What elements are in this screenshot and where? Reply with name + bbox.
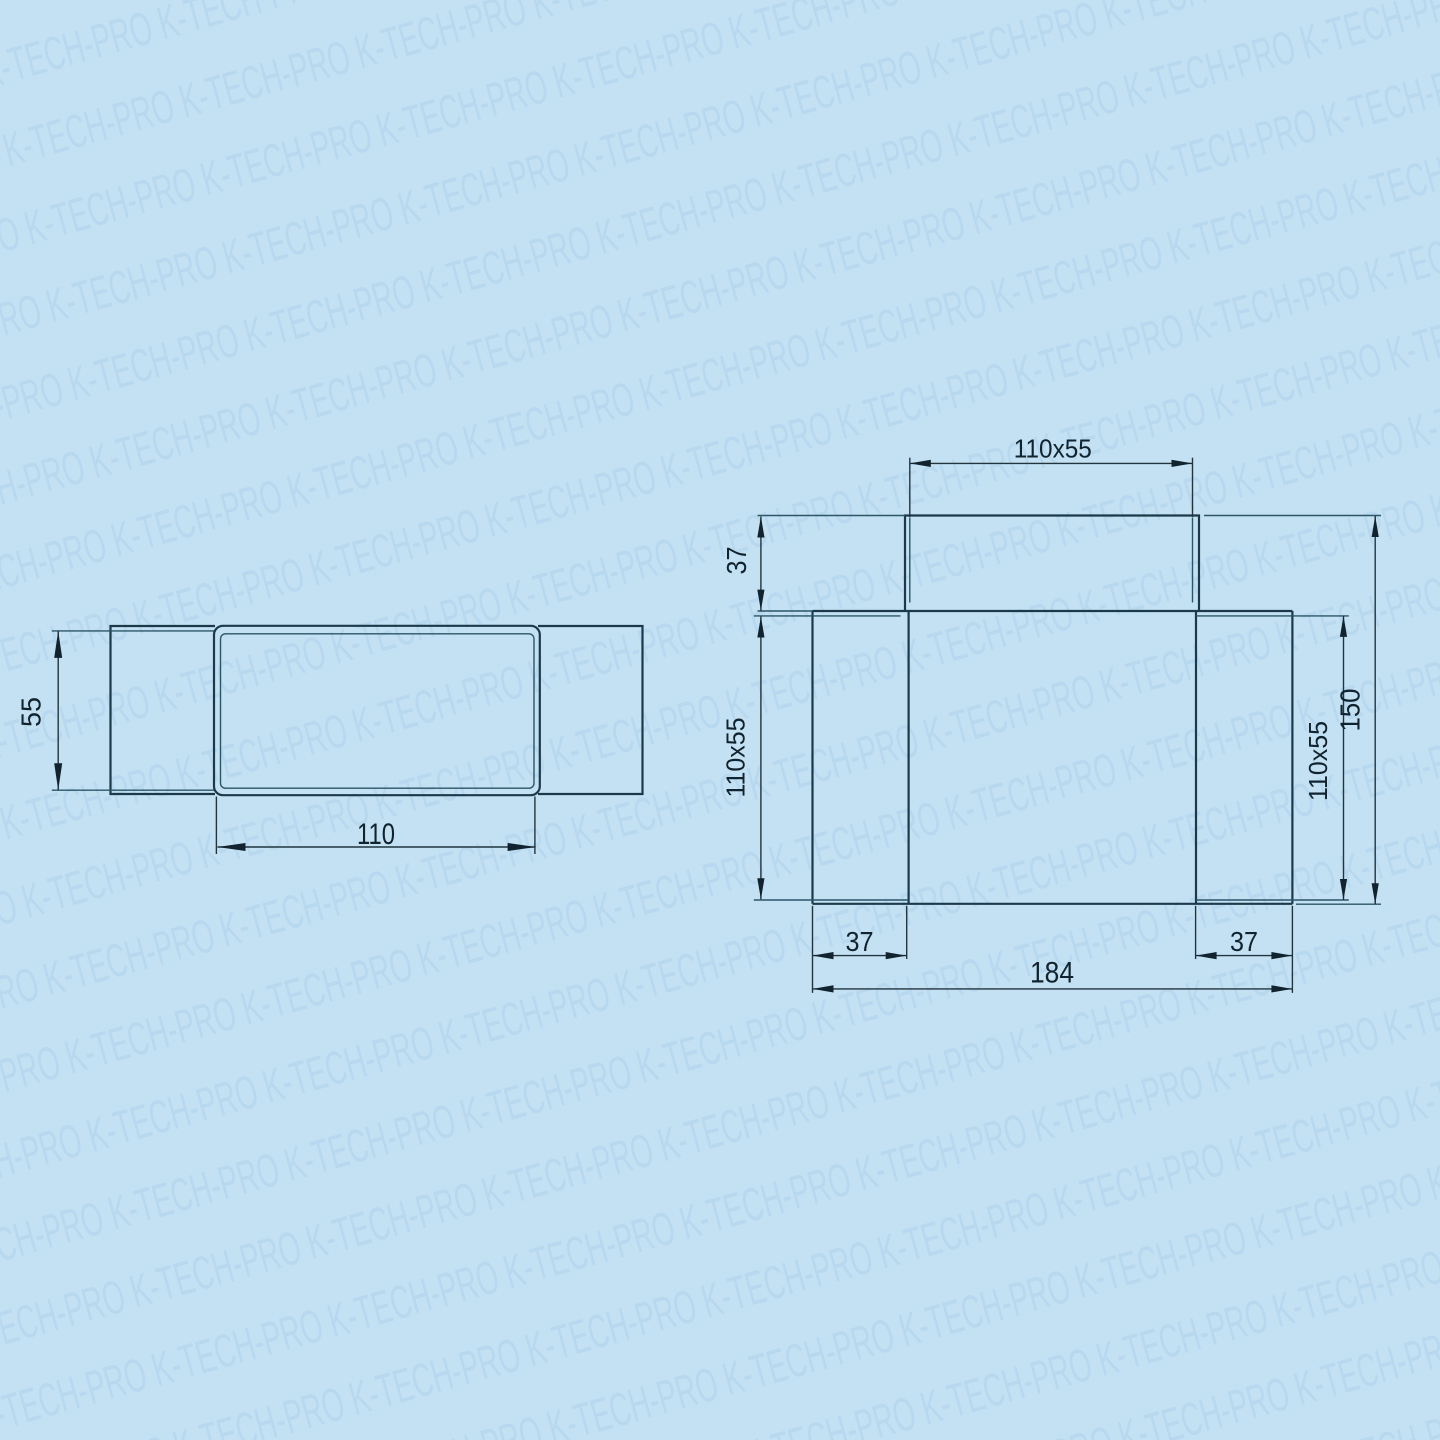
- svg-text:110x55: 110x55: [1014, 434, 1092, 464]
- svg-text:184: 184: [1030, 957, 1074, 990]
- svg-text:37: 37: [721, 547, 752, 575]
- svg-text:55: 55: [16, 697, 47, 727]
- svg-text:110x55: 110x55: [721, 718, 751, 798]
- svg-text:110x55: 110x55: [1303, 721, 1333, 801]
- svg-text:150: 150: [1335, 689, 1366, 732]
- svg-text:37: 37: [846, 926, 874, 957]
- svg-text:110: 110: [357, 818, 395, 851]
- svg-text:37: 37: [1230, 926, 1258, 957]
